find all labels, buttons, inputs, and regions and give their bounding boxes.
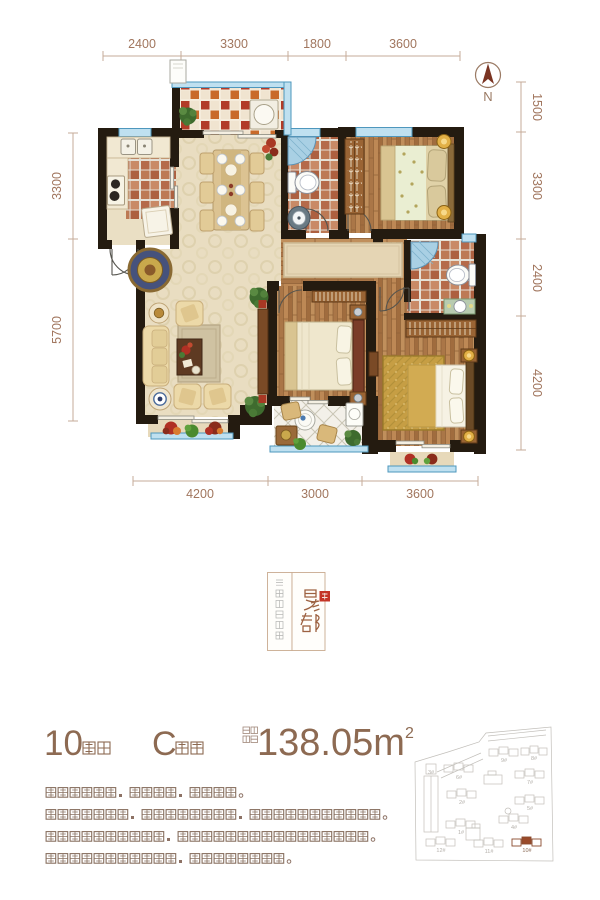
svg-text:2#: 2# [459,800,466,806]
svg-text:2400: 2400 [530,264,544,292]
svg-text:5#: 5# [527,806,534,812]
svg-text:1#: 1# [458,830,465,836]
svg-text:1500: 1500 [530,93,544,121]
svg-text:8#: 8# [531,756,538,762]
svg-text:4200: 4200 [530,369,544,397]
svg-text:3#: 3# [428,770,435,776]
svg-text:3300: 3300 [50,172,64,200]
svg-text:11#: 11# [485,849,495,855]
svg-text:6#: 6# [456,775,463,781]
svg-text:C: C [152,725,177,763]
svg-text:3000: 3000 [301,487,329,501]
svg-text:3300: 3300 [220,37,248,51]
svg-text:2400: 2400 [128,37,156,51]
svg-text:2: 2 [405,725,414,742]
svg-text:4200: 4200 [186,487,214,501]
svg-text:12#: 12# [436,848,446,854]
svg-text:10#: 10# [522,848,532,854]
svg-text:3300: 3300 [530,172,544,200]
svg-text:3600: 3600 [406,487,434,501]
svg-text:10: 10 [44,724,83,763]
svg-text:N: N [483,89,492,104]
svg-text:1800: 1800 [303,37,331,51]
svg-text:3600: 3600 [389,37,417,51]
svg-text:9#: 9# [501,758,508,764]
svg-text:138.05m: 138.05m [257,722,405,764]
svg-text:7#: 7# [527,780,534,786]
svg-text:5700: 5700 [50,316,64,344]
svg-text:4#: 4# [511,825,518,831]
